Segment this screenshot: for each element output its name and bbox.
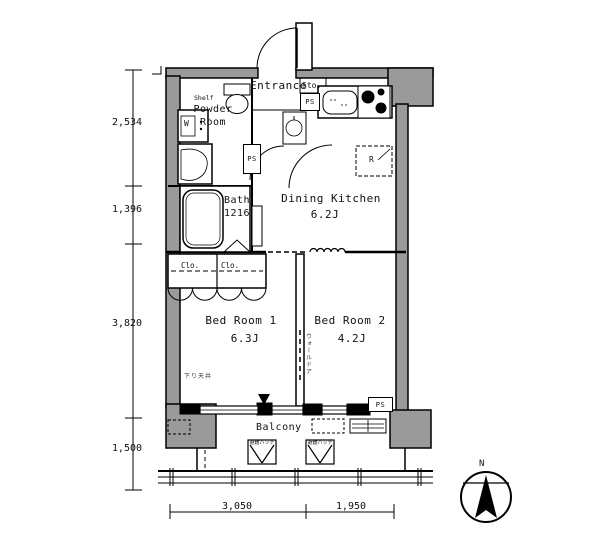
dim-bottom-2: 1,950	[321, 501, 381, 514]
partition-note: ウォールドア	[304, 333, 312, 375]
dim-left-4: 1,500	[103, 443, 151, 456]
dining-kitchen-label: Dining Kitchen	[275, 192, 387, 206]
front-door	[257, 23, 312, 70]
compass-needle-icon	[475, 475, 497, 518]
shelf-label: Shelf	[194, 94, 214, 102]
hatch-label-right: 避難ハッチ	[306, 441, 334, 446]
refrigerator-icon	[356, 146, 392, 176]
dim-bottom-1: 3,050	[207, 501, 267, 514]
bedroom1-label: Bed Room 1	[186, 314, 296, 328]
stove-icon	[358, 86, 390, 118]
ac-unit-spot-right	[312, 419, 344, 433]
north-label: N	[479, 459, 484, 470]
closet2-label: Clo.	[221, 261, 239, 270]
closet1-label: Clo.	[181, 261, 199, 270]
dim-left-1: 2,534	[103, 117, 151, 130]
storage-label: Sto.	[302, 81, 321, 91]
bedroom2-size: 4.2J	[297, 332, 407, 346]
hall-door-swing	[289, 145, 332, 188]
bath-size-label: 1216	[216, 208, 258, 221]
pipe-shaft-bottom: PS	[368, 397, 393, 412]
sink-icon	[323, 91, 357, 114]
fridge-label: R	[369, 155, 374, 165]
bath-label: Bath	[216, 195, 258, 208]
pipe-shaft-mid: PS	[243, 144, 261, 174]
powder-room-label: Powder Room	[182, 104, 244, 129]
pipe-shaft-top: PS	[300, 93, 320, 111]
washer-label: W	[184, 119, 189, 129]
bedroom2-label: Bed Room 2	[295, 314, 405, 328]
balcony-label: Balcony	[256, 422, 302, 435]
bedroom1-size: 6.3J	[190, 332, 300, 346]
dim-left-3: 3,820	[103, 318, 151, 331]
vanity-icon	[283, 112, 306, 144]
washbasin-icon	[178, 144, 212, 184]
floor-plan: Entrance Sto. PS PS PS Shelf Powder Room…	[0, 0, 600, 533]
north-compass	[461, 472, 511, 522]
lowered-ceiling-note: 下り天井	[184, 373, 212, 381]
dim-left-2: 1,396	[103, 204, 151, 217]
dining-kitchen-size: 6.2J	[275, 208, 375, 222]
entrance-label: Entrance	[250, 79, 307, 93]
hatch-label-left: 避難ハッチ	[248, 441, 276, 446]
drain-grate-icon	[350, 419, 386, 433]
